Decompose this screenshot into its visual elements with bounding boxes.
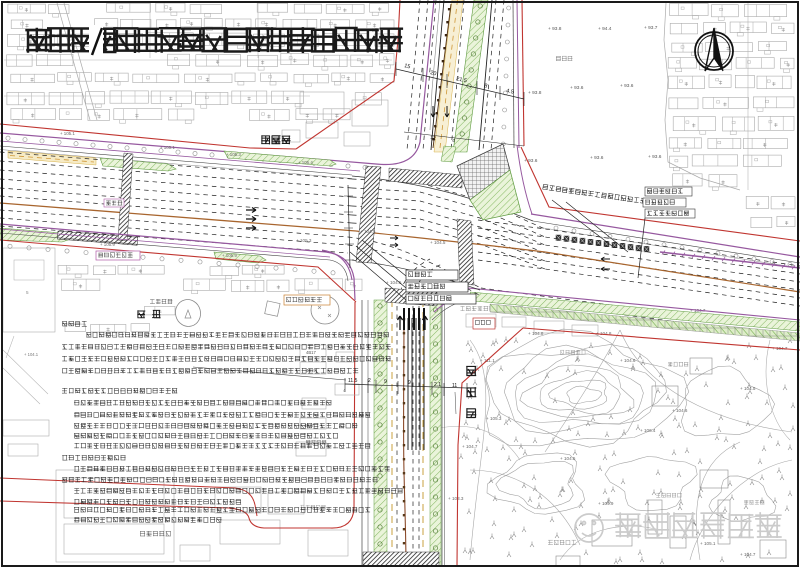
svg-text:+ 104.6: + 104.6: [672, 408, 688, 413]
svg-text:+ 105.4: + 105.4: [298, 160, 313, 165]
svg-text:+ 93.8: + 93.8: [548, 26, 562, 32]
svg-text:4: 4: [343, 388, 346, 393]
svg-text:+ 93.8: + 93.8: [528, 90, 542, 96]
svg-text:+ 93.6: + 93.6: [570, 85, 584, 91]
svg-text:5: 5: [26, 290, 29, 295]
svg-text:+ 104.7: + 104.7: [740, 552, 756, 557]
svg-text:2: 2: [368, 378, 371, 384]
svg-text:4B17: 4B17: [306, 350, 316, 355]
svg-text:+ 94.4: + 94.4: [598, 26, 612, 32]
svg-text:+ 105.1: + 105.1: [60, 131, 75, 136]
svg-text:+ 105.3: + 105.3: [226, 152, 241, 157]
svg-text:+ 104.1: + 104.1: [24, 352, 39, 357]
svg-text:+ 93.6: + 93.6: [620, 83, 634, 89]
svg-text:+ 105.3: + 105.3: [486, 416, 502, 421]
svg-text:+ 93.6: + 93.6: [590, 155, 604, 161]
svg-text:11.5: 11.5: [348, 378, 358, 384]
svg-text:9: 9: [384, 379, 387, 385]
svg-text:2.1: 2.1: [434, 382, 441, 388]
svg-text:+ 104.5: + 104.5: [560, 456, 576, 461]
svg-text:+ 93.6: + 93.6: [648, 154, 662, 160]
svg-text:+ 105.9: + 105.9: [222, 253, 237, 258]
svg-text:9: 9: [408, 380, 411, 386]
svg-text:15: 15: [404, 63, 411, 70]
svg-text:+ 93.7: + 93.7: [644, 25, 658, 31]
svg-text:+ 104.9: + 104.9: [598, 501, 614, 506]
svg-text:+ 104.5: + 104.5: [740, 386, 756, 391]
svg-text:+ 105.9: + 105.9: [100, 242, 115, 247]
svg-text:+ 103.3: + 103.3: [448, 496, 464, 501]
svg-text:+ 106.4: + 106.4: [640, 428, 656, 433]
svg-text:+ 105.1: + 105.1: [160, 145, 175, 150]
svg-text:8: 8: [484, 83, 488, 90]
svg-text:+ 104.5: + 104.5: [360, 229, 376, 234]
svg-text:20: 20: [430, 70, 437, 77]
svg-text:+ 104.6: + 104.6: [620, 358, 636, 363]
svg-text:12: 12: [430, 135, 436, 142]
svg-text:11: 11: [452, 383, 457, 389]
svg-text:+ 104.8: + 104.8: [528, 331, 544, 336]
svg-text:+ 105.3: + 105.3: [296, 238, 312, 243]
svg-text:+ 104.7: + 104.7: [462, 444, 478, 449]
svg-text:+ 104.5: + 104.5: [430, 240, 446, 245]
svg-text:+ 105.1: + 105.1: [700, 541, 716, 546]
